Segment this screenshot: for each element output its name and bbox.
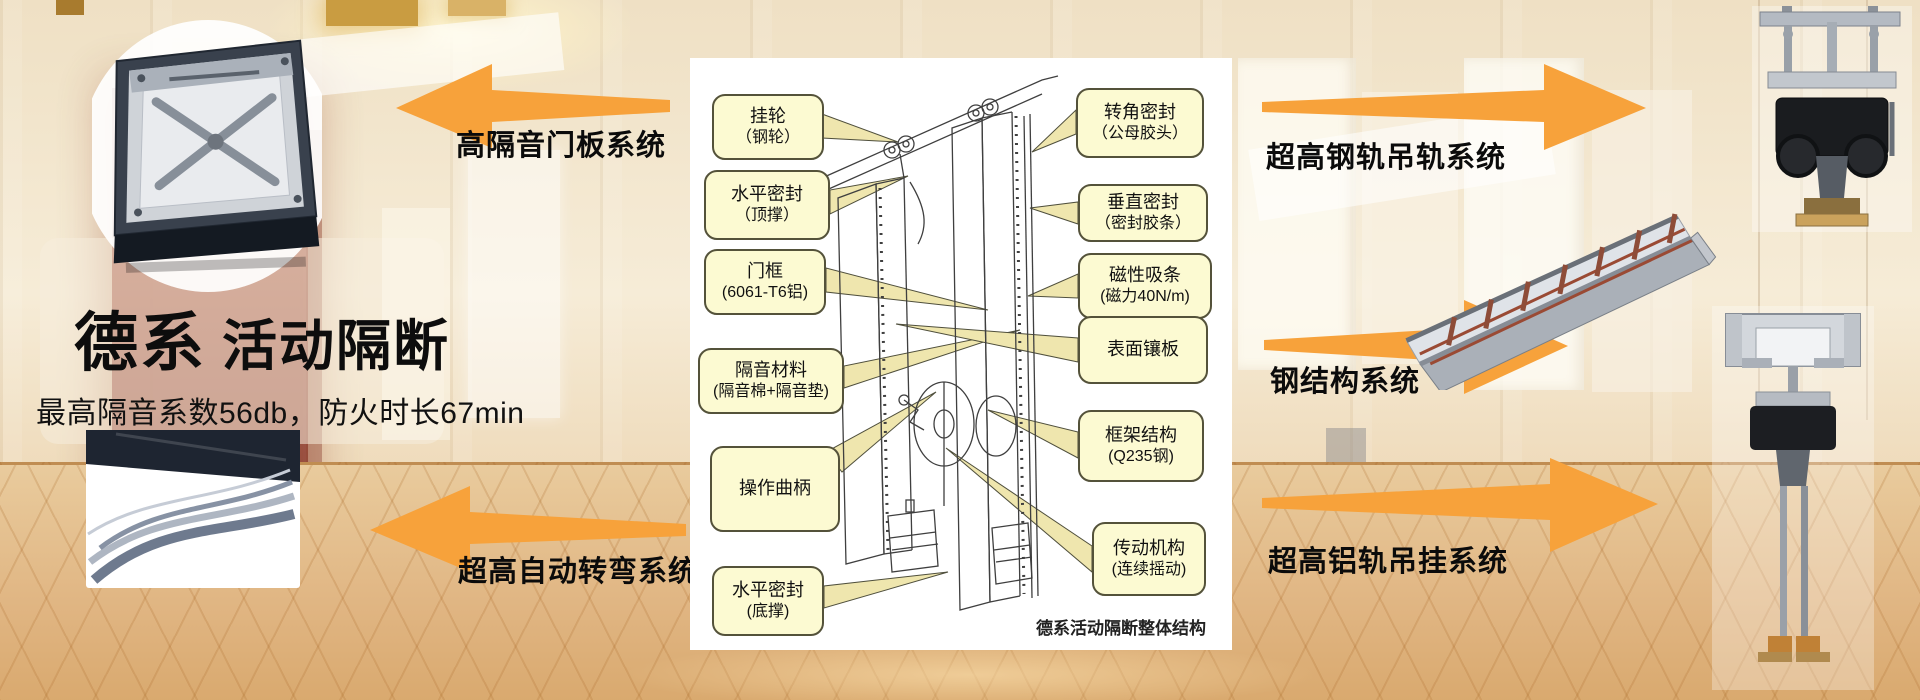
callout-line1: 水平密封 <box>732 579 804 602</box>
callout-line1: 水平密封 <box>731 183 803 206</box>
callout-surface-panel: 表面镶板 <box>1078 316 1208 384</box>
callout-line2: （密封胶条） <box>1095 214 1191 234</box>
callout-line1: 挂轮 <box>750 105 786 128</box>
callout-line2: (底撑) <box>747 602 790 622</box>
callout-corner-seal: 转角密封 （公母胶头） <box>1076 88 1204 158</box>
label-steel-rail-hanging-system: 超高钢轨吊轨系统 <box>1266 134 1506 176</box>
photo-aluminum-rail-hanger <box>1698 306 1888 696</box>
callout-line1: 隔音材料 <box>735 359 807 382</box>
callout-line2: （顶撑） <box>735 206 799 226</box>
product-title: 德系 活动隔断 <box>74 292 450 384</box>
callout-line2: (磁力40N/m) <box>1100 287 1190 307</box>
callout-line1: 垂直密封 <box>1107 191 1179 214</box>
callout-magnetic-strip: 磁性吸条 (磁力40N/m) <box>1078 253 1212 319</box>
photo-steel-structure-truss <box>1398 180 1728 390</box>
callout-line1: 门框 <box>747 260 783 283</box>
photo-door-panel-mechanism <box>92 14 322 300</box>
callout-horizontal-seal-top: 水平密封 （顶撑） <box>704 170 830 240</box>
callout-line1: 操作曲柄 <box>739 477 811 500</box>
slide: 德系 活动隔断 最高隔音系数56db，防火时长67min 高隔音门板系统 超高自… <box>0 0 1920 700</box>
callout-line1: 表面镶板 <box>1107 338 1179 361</box>
callout-line1: 框架结构 <box>1105 424 1177 447</box>
callout-line2: (6061-T6铝) <box>722 283 808 303</box>
diagram-caption: 德系活动隔断整体结构 <box>1036 614 1206 639</box>
callout-transmission-mechanism: 传动机构 (连续摇动) <box>1092 522 1206 596</box>
diagram-panel: 挂轮 （钢轮） 水平密封 （顶撑） 门框 (6061-T6铝) 隔音材料 (隔音… <box>690 58 1232 650</box>
photo-curved-track <box>86 430 300 588</box>
callout-line1: 转角密封 <box>1104 101 1176 124</box>
label-auto-turning-system: 超高自动转弯系统 <box>458 548 698 590</box>
background-panel <box>468 150 560 418</box>
callout-line2: (Q235钢) <box>1108 447 1174 467</box>
callout-line2: （公母胶头） <box>1092 124 1188 144</box>
gold-trim <box>56 0 84 15</box>
callout-frame-structure: 框架结构 (Q235钢) <box>1078 410 1204 482</box>
callout-line2: (连续摇动) <box>1112 560 1187 580</box>
gold-light-fixture <box>326 0 418 26</box>
label-aluminum-rail-hanging-system: 超高铝轨吊挂系统 <box>1268 538 1508 580</box>
label-door-panel-system: 高隔音门板系统 <box>456 122 666 164</box>
brand-name: 德系 <box>74 292 206 384</box>
callout-line2: （钢轮） <box>736 128 800 148</box>
product-subtitle: 最高隔音系数56db，防火时长67min <box>36 388 524 432</box>
photo-steel-rail-trolley <box>1742 6 1918 238</box>
product-name: 活动隔断 <box>222 301 450 381</box>
callout-hanging-wheel: 挂轮 （钢轮） <box>712 94 824 160</box>
callout-line1: 传动机构 <box>1113 537 1185 560</box>
callout-vertical-seal: 垂直密封 （密封胶条） <box>1078 184 1208 242</box>
gold-light-fixture <box>448 0 506 16</box>
callout-horizontal-seal-bottom: 水平密封 (底撑) <box>712 566 824 636</box>
callout-line1: 磁性吸条 <box>1109 264 1181 287</box>
callout-line2: (隔音棉+隔音垫) <box>713 382 829 402</box>
callout-operating-crank: 操作曲柄 <box>710 446 840 532</box>
callout-door-frame: 门框 (6061-T6铝) <box>704 249 826 315</box>
callout-sound-insulation-material: 隔音材料 (隔音棉+隔音垫) <box>698 348 844 414</box>
